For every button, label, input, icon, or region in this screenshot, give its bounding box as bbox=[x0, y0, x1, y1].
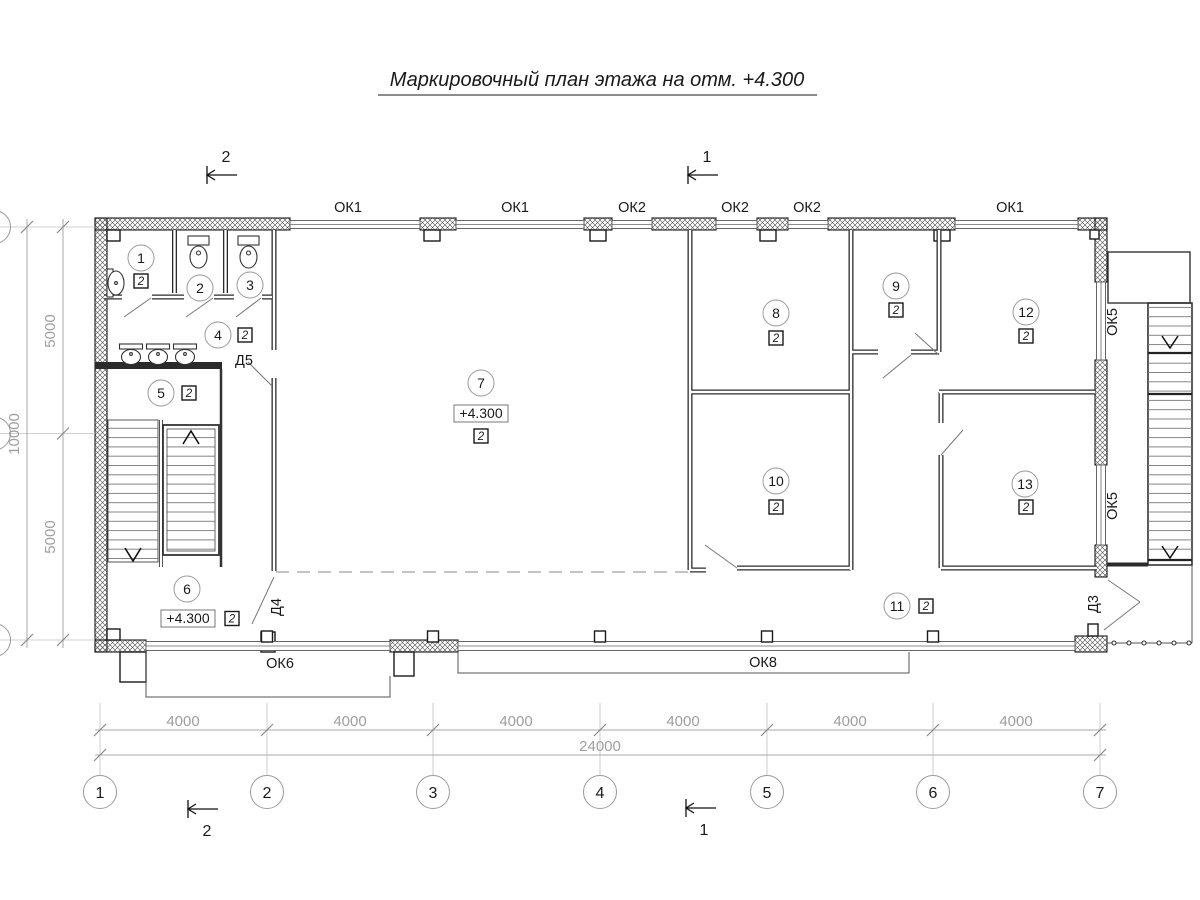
room-number-7: 7 bbox=[477, 375, 485, 391]
bottom-dimensions: 4000 4000 4000 4000 4000 4000 24000 bbox=[94, 703, 1106, 775]
room-mark-13: 2 bbox=[1022, 502, 1030, 514]
room-mark-11: 2 bbox=[922, 601, 930, 613]
internal-stair bbox=[108, 420, 219, 567]
section-mark-bottom-2: 2 bbox=[188, 800, 218, 840]
room-mark-4: 2 bbox=[241, 330, 249, 342]
window-label-ok2-1: ОК2 bbox=[618, 200, 646, 216]
window-label-ok2-3: ОК2 bbox=[793, 200, 821, 216]
room-number-8: 8 bbox=[772, 305, 780, 321]
axis-bubble-4: 4 bbox=[596, 785, 605, 802]
window-labels: ОК1 ОК1 ОК2 ОК2 ОК2 ОК1 ОК5 ОК5 ОК6 ОК8 … bbox=[235, 200, 1121, 672]
room-number-6: 6 bbox=[183, 581, 191, 597]
door-label-d3: Д3 bbox=[1086, 595, 1102, 613]
room-number-1: 1 bbox=[137, 250, 145, 266]
axis-bubble-6: 6 bbox=[929, 785, 938, 802]
room-mark-10: 2 bbox=[772, 502, 780, 514]
dim-left-5000-bottom: 5000 bbox=[42, 520, 59, 553]
section-mark-top-1: 1 bbox=[688, 149, 718, 184]
door-label-d5: Д5 bbox=[235, 353, 253, 369]
window-label-ok5-1: ОК5 bbox=[1105, 308, 1121, 336]
sink-room1 bbox=[107, 269, 124, 297]
sinks-room4 bbox=[120, 344, 197, 365]
porches bbox=[120, 652, 909, 697]
room-number-10: 10 bbox=[768, 473, 784, 489]
dim-4000-4: 4000 bbox=[666, 713, 699, 730]
wall-column-stubs bbox=[107, 230, 1099, 652]
dim-left-5000-top: 5000 bbox=[42, 314, 59, 347]
room-number-13: 13 bbox=[1017, 476, 1033, 492]
window-label-ok1-2: ОК1 bbox=[501, 200, 529, 216]
floor-plan-sheet: Маркировочный план этажа на отм. +4.300 … bbox=[0, 0, 1200, 900]
dim-4000-6: 4000 bbox=[999, 713, 1032, 730]
dim-left-10000: 10000 bbox=[6, 413, 23, 455]
room-number-3: 3 bbox=[246, 277, 254, 293]
axis-bubble-3: 3 bbox=[429, 785, 438, 802]
room-mark-1: 2 bbox=[137, 276, 145, 288]
dim-4000-1: 4000 bbox=[166, 713, 199, 730]
toilet-room2 bbox=[188, 236, 209, 268]
axis-bubble-1: 1 bbox=[96, 785, 105, 802]
room-number-2: 2 bbox=[196, 280, 204, 296]
window-bands bbox=[146, 221, 1106, 651]
axis-bubble-5: 5 bbox=[763, 785, 772, 802]
room-number-12: 12 bbox=[1018, 304, 1034, 320]
section-label: 2 bbox=[203, 823, 212, 840]
room-mark-6: 2 bbox=[228, 614, 236, 626]
dim-4000-2: 4000 bbox=[333, 713, 366, 730]
room-mark-9: 2 bbox=[892, 305, 900, 317]
toilet-room3 bbox=[238, 236, 259, 268]
window-label-ok6: ОК6 bbox=[266, 656, 294, 672]
window-label-ok1-1: ОК1 bbox=[334, 200, 362, 216]
axis-bubble-7: 7 bbox=[1096, 785, 1105, 802]
left-dimensions: 5000 5000 10000 bbox=[0, 211, 95, 657]
bottom-band-columns bbox=[262, 631, 939, 642]
window-label-ok8: ОК8 bbox=[749, 655, 777, 671]
window-label-ok1-3: ОК1 bbox=[996, 200, 1024, 216]
room-number-11: 11 bbox=[890, 598, 905, 614]
section-mark-bottom-1: 1 bbox=[686, 799, 716, 839]
room-number-5: 5 bbox=[157, 385, 165, 401]
dim-24000: 24000 bbox=[579, 738, 621, 755]
room-mark-8: 2 bbox=[772, 333, 780, 345]
room-number-9: 9 bbox=[892, 278, 900, 294]
door-label-d4: Д4 bbox=[269, 598, 285, 616]
section-label: 1 bbox=[700, 822, 709, 839]
room-mark-5: 2 bbox=[185, 388, 193, 400]
window-label-ok5-2: ОК5 bbox=[1105, 492, 1121, 520]
axis-bubble-2: 2 bbox=[263, 785, 272, 802]
floor-plan-svg: Маркировочный план этажа на отм. +4.300 … bbox=[0, 0, 1200, 900]
room-elevation-7: +4.300 bbox=[459, 405, 502, 421]
dim-4000-5: 4000 bbox=[833, 713, 866, 730]
window-label-ok2-2: ОК2 bbox=[721, 200, 749, 216]
axis-bubbles: 1 2 3 4 5 6 7 bbox=[84, 776, 1117, 809]
room-mark-7: 2 bbox=[477, 431, 485, 443]
room-elevation-6: +4.300 bbox=[166, 610, 209, 626]
room-markers: 1 2 2 3 4 2 5 2 6 +4.300 2 7 +4.300 2 8 … bbox=[128, 245, 1039, 627]
dim-4000-3: 4000 bbox=[499, 713, 532, 730]
drawing-title: Маркировочный план этажа на отм. +4.300 bbox=[390, 69, 805, 91]
section-label: 2 bbox=[222, 149, 231, 166]
room-number-4: 4 bbox=[214, 327, 222, 343]
section-label: 1 bbox=[703, 149, 712, 166]
room-mark-12: 2 bbox=[1022, 331, 1030, 343]
section-mark-top-2: 2 bbox=[207, 149, 237, 184]
